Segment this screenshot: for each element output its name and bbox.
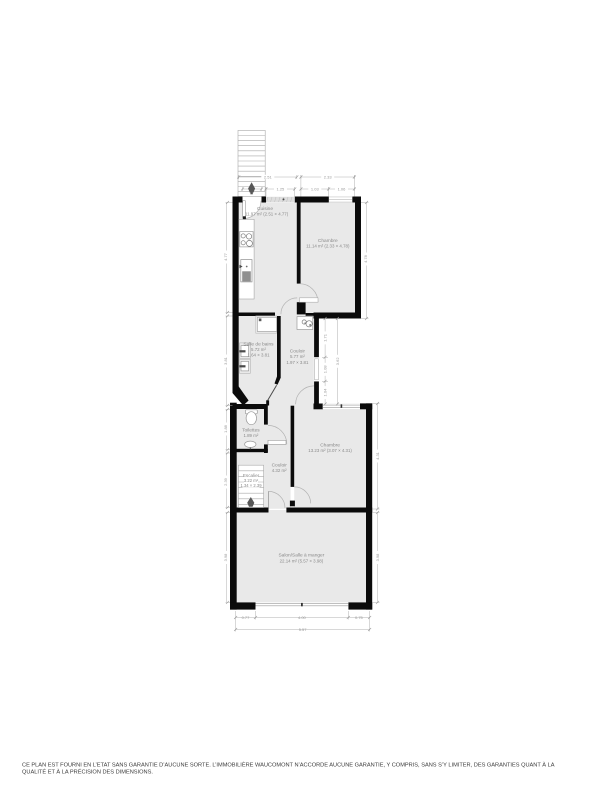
svg-text:1.03: 1.03 [311,187,320,192]
svg-text:QUALITÉ ET À LA PRÉCISION DES: QUALITÉ ET À LA PRÉCISION DES DIMENSIONS… [22,769,153,776]
svg-text:3.81: 3.81 [223,356,228,365]
svg-text:4.32 m²: 4.32 m² [272,468,287,473]
svg-text:4.77: 4.77 [223,252,228,261]
svg-text:13.23 m² (3.07 × 4.31): 13.23 m² (3.07 × 4.31) [308,448,352,453]
svg-text:11.14 m² (2.33 × 4.78): 11.14 m² (2.33 × 4.78) [306,244,350,249]
svg-text:11.97 m² (2.51 × 4.77): 11.97 m² (2.51 × 4.77) [245,211,289,216]
svg-text:0.75: 0.75 [355,615,364,620]
svg-text:4.31: 4.31 [375,451,380,460]
svg-text:1.06: 1.06 [338,187,347,192]
svg-text:22.14 m² (5.57 × 3.98): 22.14 m² (5.57 × 3.98) [280,558,324,563]
svg-text:1.34 × 2.39: 1.34 × 2.39 [240,483,262,488]
svg-text:3.98: 3.98 [223,553,228,562]
svg-text:2.33: 2.33 [324,175,333,180]
svg-text:1.97 × 3.81: 1.97 × 3.81 [286,360,309,365]
svg-text:1.89 m²: 1.89 m² [243,433,258,438]
svg-text:2.51: 2.51 [264,175,273,180]
svg-text:3.62: 3.62 [335,357,340,366]
svg-text:5.57: 5.57 [299,627,308,632]
svg-text:1.88: 1.88 [223,424,228,433]
svg-text:0.77: 0.77 [242,615,251,620]
svg-text:1.08: 1.08 [323,365,328,374]
svg-text:1.64 × 3.81: 1.64 × 3.81 [247,353,270,358]
svg-text:3.98: 3.98 [375,553,380,562]
svg-text:CE PLAN EST FOURNI EN L’ETAT S: CE PLAN EST FOURNI EN L’ETAT SANS GARANT… [22,762,555,769]
svg-text:2.39: 2.39 [223,477,228,486]
svg-text:4.78: 4.78 [363,254,368,263]
svg-text:1.71: 1.71 [323,333,328,342]
svg-text:5.72 m²: 5.72 m² [251,347,266,352]
svg-text:4.00: 4.00 [298,615,307,620]
svg-text:1.04: 1.04 [323,388,328,397]
svg-text:1.25: 1.25 [277,187,286,192]
svg-text:5.77 m²: 5.77 m² [290,354,305,359]
